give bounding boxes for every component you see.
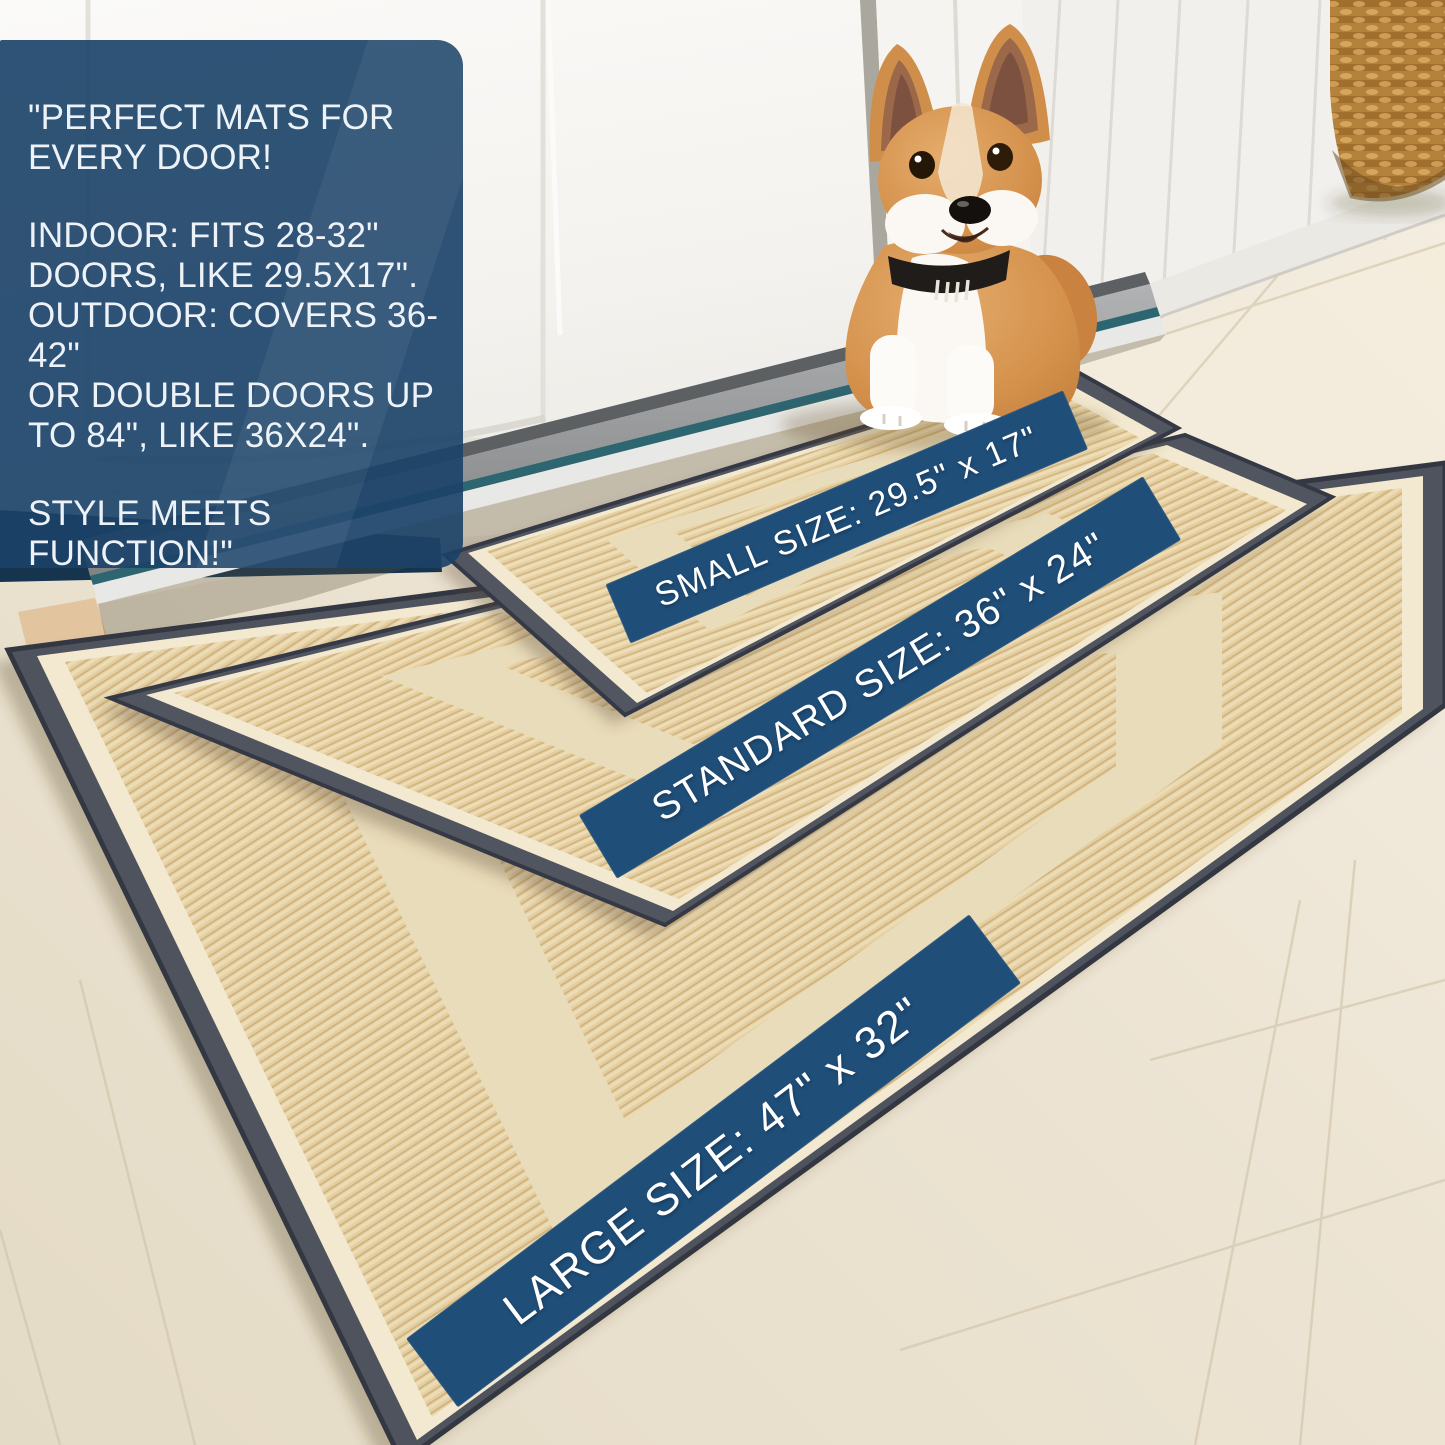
- dog-front-leg: [946, 345, 994, 425]
- dog-front-leg: [870, 335, 916, 417]
- dog-eye: [987, 143, 1013, 171]
- quote-size-details: INDOOR: FITS 28-32" DOORS, LIKE 29.5X17"…: [28, 216, 455, 456]
- quote-tagline: STYLE MEETS FUNCTION!": [28, 494, 455, 574]
- dog-eye: [909, 151, 935, 179]
- quote-headline: "PERFECT MATS FOR EVERY DOOR!: [28, 98, 455, 178]
- wicker-basket: [1328, 0, 1445, 216]
- quote-overlay-box: "PERFECT MATS FOR EVERY DOOR! INDOOR: FI…: [0, 40, 463, 568]
- dog-nose: [949, 196, 991, 224]
- product-image: SMALL SIZE: 29.5" x 17" STANDARD SIZE: 3…: [0, 0, 1445, 1445]
